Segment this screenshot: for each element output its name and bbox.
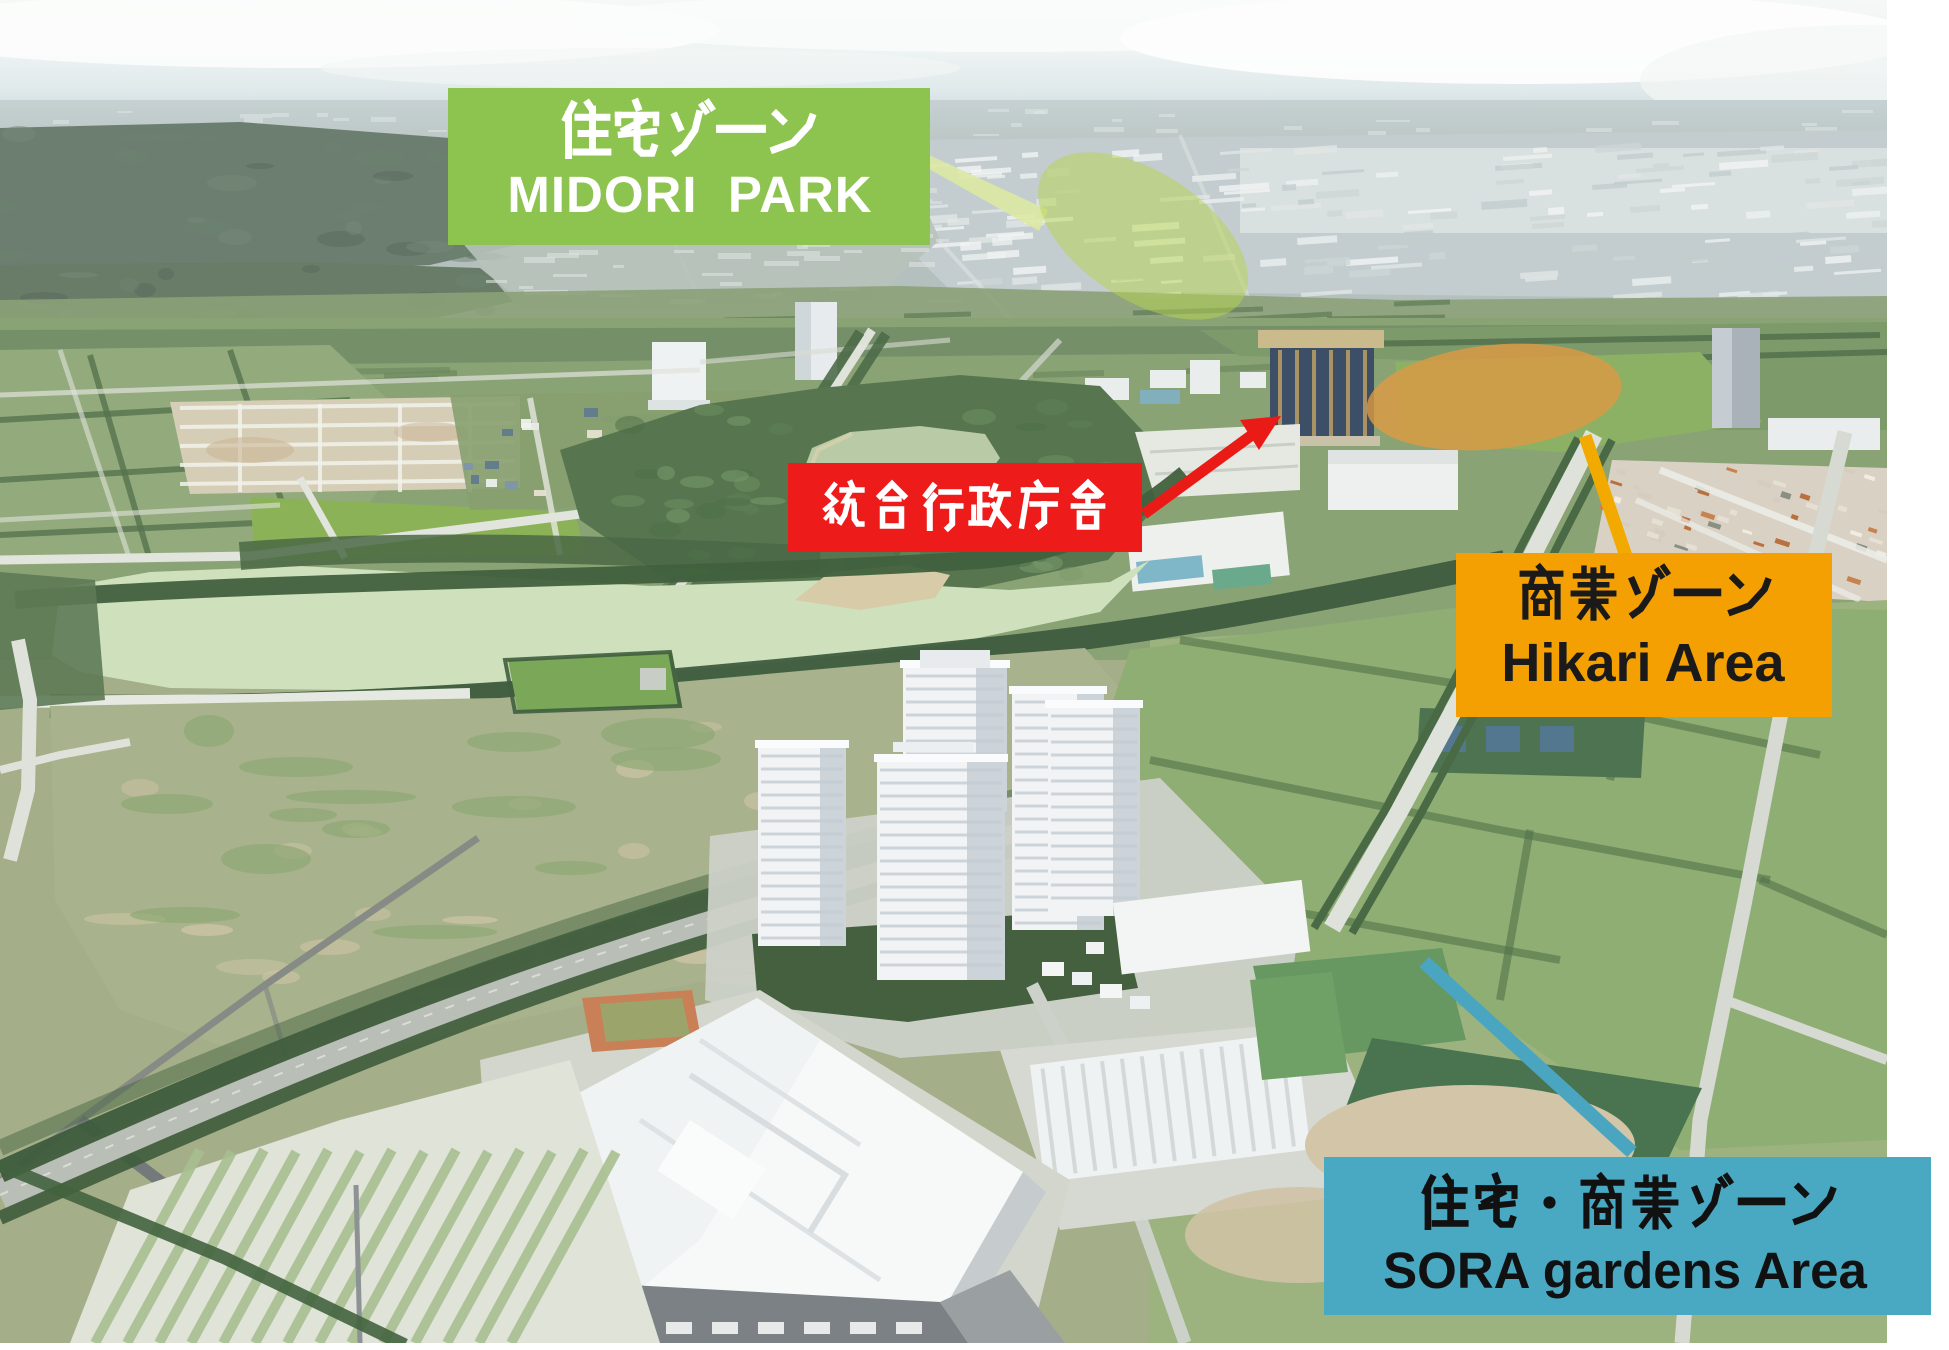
- svg-text:SORA gardens Area: SORA gardens Area: [1383, 1242, 1867, 1299]
- svg-text:Hikari Area: Hikari Area: [1501, 633, 1785, 693]
- svg-text:MIDORI PARK: MIDORI PARK: [507, 166, 872, 223]
